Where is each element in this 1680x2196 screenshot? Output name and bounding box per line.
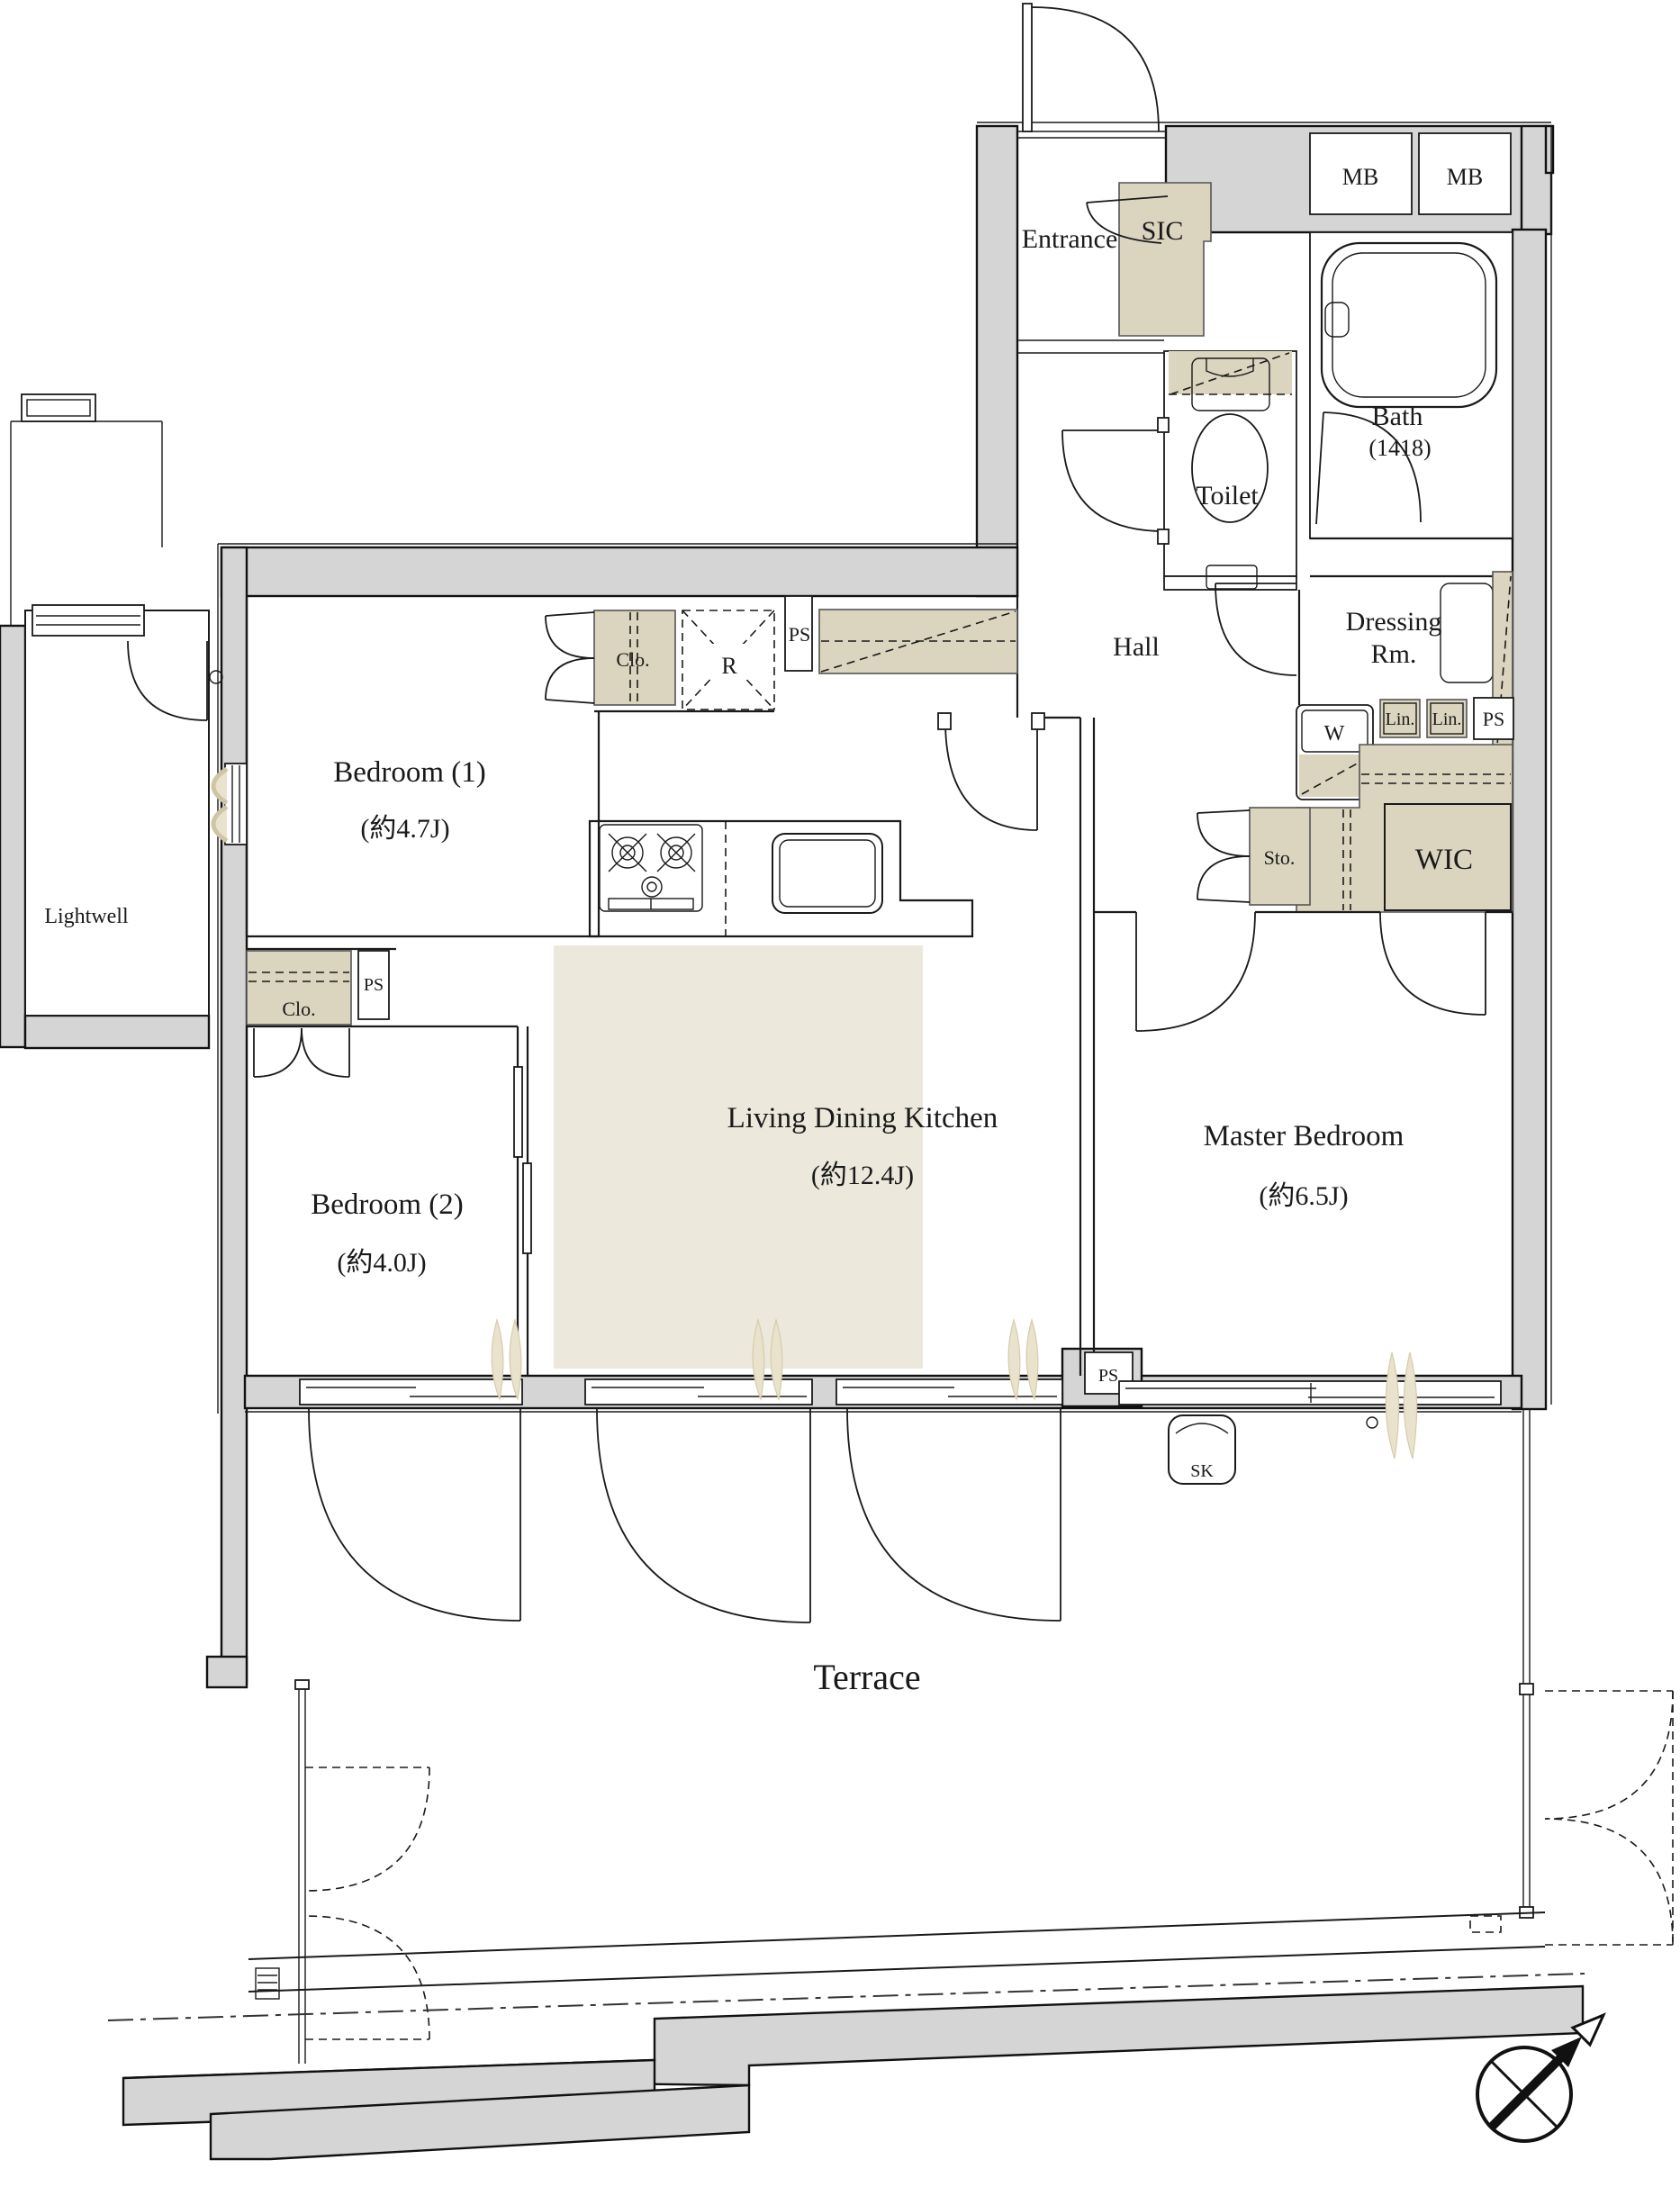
ps-bedroom2-label: PS xyxy=(364,975,384,995)
lightwell-label: Lightwell xyxy=(44,905,129,928)
toilet-room: Toilet xyxy=(1062,351,1296,590)
lin-right-label: Lin. xyxy=(1432,709,1462,729)
bedroom1-size-label: (約4.7J) xyxy=(360,814,449,844)
floor-areas xyxy=(554,945,923,1369)
mb-left-label: MB xyxy=(1342,164,1378,190)
ldk-floor xyxy=(554,945,923,1369)
terrace-gate-right xyxy=(1545,1691,1673,1945)
bedroom2-size-label: (約4.0J) xyxy=(337,1248,426,1278)
master-bedroom: Master Bedroom (約6.5J) xyxy=(1094,912,1513,1211)
ldk-size-label: (約12.4J) xyxy=(811,1161,914,1190)
bath-size-label: (1418) xyxy=(1368,435,1431,461)
toilet-label: Toilet xyxy=(1196,481,1259,511)
ps-dressing-label: PS xyxy=(1483,708,1504,730)
floor-plan: MB MB Entrance SIC Bath (1418) xyxy=(0,0,1680,2196)
entry-door-arc xyxy=(1032,7,1159,131)
storage: Sto. xyxy=(1197,808,1310,905)
sk-sink: SK xyxy=(1169,1415,1235,1484)
shoe-in-closet: SIC xyxy=(1087,183,1211,336)
dressing-label-1: Dressing xyxy=(1346,607,1442,637)
terrace-door-arcs xyxy=(309,1409,1061,1622)
entry-door-leaf xyxy=(1023,4,1032,131)
vanity xyxy=(1441,583,1493,682)
master-label: Master Bedroom xyxy=(1204,1120,1405,1152)
lin-left-label: Lin. xyxy=(1386,709,1415,729)
ps-kitchen-label: PS xyxy=(789,623,810,646)
sink xyxy=(772,834,882,913)
lightwell: Lightwell xyxy=(11,394,209,1016)
kitchen: Clo. R PS xyxy=(546,596,1017,936)
terrace-label: Terrace xyxy=(813,1657,920,1697)
hall-label: Hall xyxy=(1113,632,1160,662)
refrigerator-space: R xyxy=(682,610,774,709)
meter-boxes: MB MB xyxy=(1310,133,1511,214)
mb-right-label: MB xyxy=(1447,164,1483,190)
bathroom: Bath (1418) xyxy=(1310,232,1513,538)
terrace: Terrace xyxy=(108,1408,1673,2064)
wic-label: WIC xyxy=(1415,844,1473,876)
terrace-gate-left xyxy=(305,1767,429,2039)
sto-label: Sto. xyxy=(1264,846,1296,869)
ps-ldk-label: PS xyxy=(1098,1366,1118,1386)
bedroom1-label: Bedroom (1) xyxy=(333,756,486,789)
ldk-label: Living Dining Kitchen xyxy=(727,1102,998,1134)
stove xyxy=(600,825,702,911)
bedroom-2: Clo. PS Bedroom (2) (約4.0J) xyxy=(247,951,531,1376)
entrance-label: Entrance xyxy=(1022,224,1118,254)
clo-bedroom2-label: Clo. xyxy=(282,998,315,1020)
bedroom2-label: Bedroom (2) xyxy=(311,1188,464,1221)
master-size-label: (約6.5J) xyxy=(1259,1181,1348,1211)
washer-label: W xyxy=(1324,722,1345,746)
sk-label: SK xyxy=(1190,1461,1214,1481)
refrigerator-label: R xyxy=(721,653,737,679)
dressing-label-2: Rm. xyxy=(1371,639,1417,669)
bedroom-1: Bedroom (1) (約4.7J) xyxy=(210,596,774,949)
clo-bedroom1-label: Clo. xyxy=(616,648,649,671)
